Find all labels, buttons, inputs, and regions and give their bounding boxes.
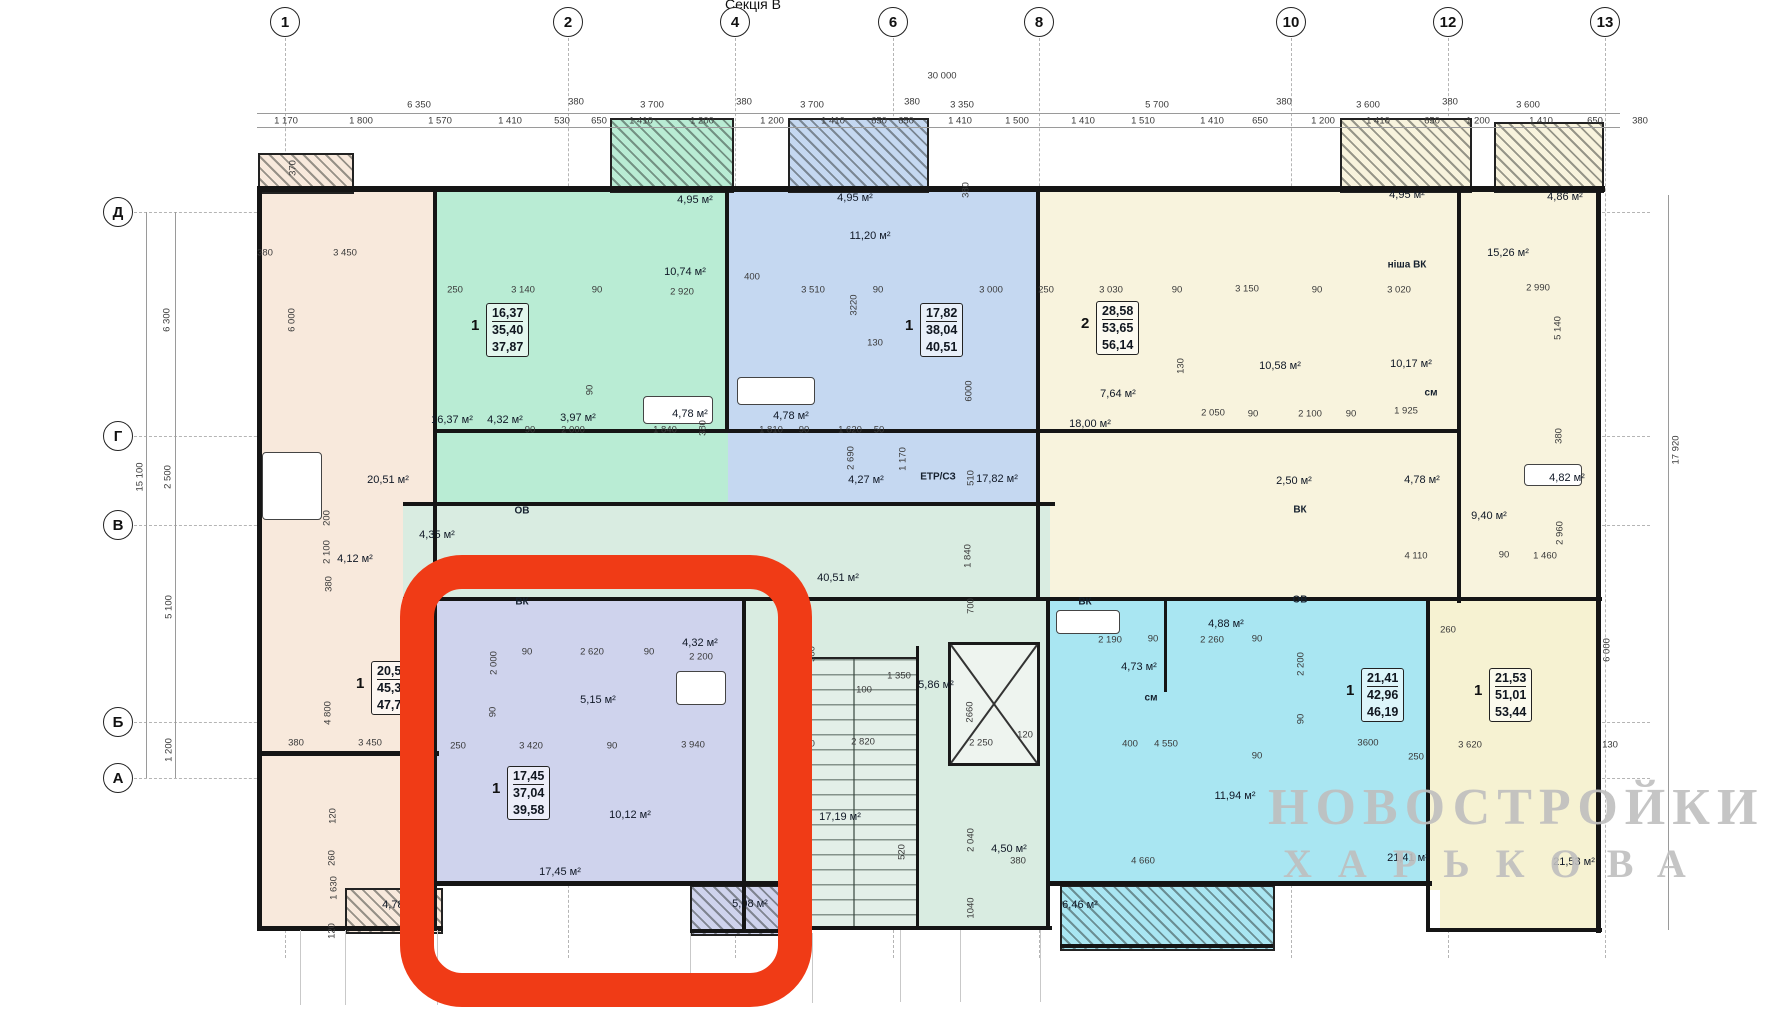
area-label: 11,20 м² xyxy=(850,230,891,242)
plumbing-fixture xyxy=(737,377,815,405)
dimension-label: 90 xyxy=(1346,409,1357,420)
apartment-room-count: 2 xyxy=(1081,315,1089,332)
dimension-label: 380 xyxy=(904,97,920,108)
dimension-label: 3 600 xyxy=(1356,100,1380,111)
area-label: 4,73 м² xyxy=(1121,661,1157,673)
extension-line xyxy=(300,930,301,1005)
area-label: 2,50 м² xyxy=(1276,475,1312,487)
apartment-area-value: 20,5 xyxy=(377,663,401,680)
dimension-label: 1 200 xyxy=(164,738,175,762)
elevator-shaft xyxy=(948,642,1040,766)
plumbing-fixture xyxy=(1056,610,1120,634)
room-fill xyxy=(437,190,728,505)
dimension-label: 3 600 xyxy=(1516,100,1540,111)
area-label: 4,32 м² xyxy=(487,414,523,426)
dimension-label: 3 140 xyxy=(511,285,535,296)
area-label: 4,78 м² xyxy=(1404,474,1440,486)
dimension-label: 370 xyxy=(288,160,299,176)
dimension-label: 5 140 xyxy=(1553,316,1564,340)
highlight-rectangle xyxy=(400,555,812,1007)
dimension-label: 2 040 xyxy=(966,828,977,852)
room-tag-label: ВК xyxy=(1293,505,1306,516)
column-axis-marker: 4 xyxy=(720,7,750,37)
room-tag-label: см xyxy=(1145,693,1158,704)
room-fill xyxy=(1440,885,1600,932)
dimension-label: 90 xyxy=(1172,285,1183,296)
apartment-area-value: 17,82 xyxy=(926,305,957,322)
dimension-label: 1 500 xyxy=(1005,116,1029,127)
column-axis-marker: 13 xyxy=(1590,7,1620,37)
dimension-label: 90 xyxy=(873,285,884,296)
dimension-label: 90 xyxy=(1252,634,1263,645)
dimension-label: 380 xyxy=(1442,97,1458,108)
dimension-label: 2 250 xyxy=(969,738,993,749)
area-label: 11,94 м² xyxy=(1215,790,1256,802)
dimension-label: 4 110 xyxy=(1404,551,1427,562)
area-label: 16,37 м² xyxy=(431,414,473,426)
watermark-line: ХАРЬКОВА xyxy=(1283,840,1712,887)
area-label: 4,95 м² xyxy=(837,192,873,204)
column-axis-marker: 12 xyxy=(1433,7,1463,37)
dimension-label: 400 xyxy=(1122,739,1138,750)
dimension-label: 3 700 xyxy=(640,100,664,111)
dimension-label: 650 xyxy=(1587,116,1603,127)
dimension-label: 130 xyxy=(1602,740,1618,751)
area-label: 3,97 м² xyxy=(560,412,596,424)
dimension-label: 1 410 xyxy=(498,116,522,127)
dimension-label: 3 620 xyxy=(1458,740,1482,751)
dimension-label: 3 450 xyxy=(358,738,382,749)
dimension-label: 380 xyxy=(257,248,273,259)
dimension-label: 1 350 xyxy=(887,671,911,682)
row-axis-marker: Д xyxy=(103,197,133,227)
dimension-label: 2 100 xyxy=(1298,409,1322,420)
dimension-label: 520 xyxy=(897,844,908,860)
apartment-room-count: 1 xyxy=(905,317,913,334)
dimension-label: 5 700 xyxy=(1145,100,1169,111)
dimension-label: 2 920 xyxy=(670,287,694,298)
area-label: 4,27 м² xyxy=(848,474,884,486)
dimension-label: 700 xyxy=(966,598,977,614)
balcony xyxy=(1494,122,1604,193)
dimension-label: 4 660 xyxy=(1131,856,1155,867)
column-axis-marker: 10 xyxy=(1276,7,1306,37)
apartment-area-value: 45,3 xyxy=(377,680,401,696)
dimension-label: 6 300 xyxy=(162,308,173,332)
dimension-label: 6 000 xyxy=(1602,638,1613,662)
wall-segment xyxy=(1457,186,1461,603)
dimension-label: 1 200 xyxy=(1466,116,1490,127)
extension-line xyxy=(960,930,961,1002)
dimension-line xyxy=(257,127,1620,128)
apartment-areas: 16,3735,4037,87 xyxy=(486,303,529,357)
balcony xyxy=(1340,118,1472,193)
dimension-label: 90 xyxy=(585,385,596,396)
dimension-label: 30 000 xyxy=(927,71,956,82)
apartment-info-box: 121,5351,0153,44 xyxy=(1489,668,1532,722)
watermark-line: НОВОСТРОЙКИ xyxy=(1268,778,1764,837)
row-axis-marker: Б xyxy=(103,707,133,737)
apartment-room-count: 1 xyxy=(1346,682,1354,699)
column-axis-marker: 2 xyxy=(553,7,583,37)
apartment-areas: 21,5351,0153,44 xyxy=(1489,668,1532,722)
dimension-label: 1 630 xyxy=(329,876,340,900)
dimension-label: 3 700 xyxy=(800,100,824,111)
apartment-area-value: 28,58 xyxy=(1102,303,1133,320)
dimension-label: 3 150 xyxy=(1235,284,1259,295)
apartment-areas: 21,4142,9646,19 xyxy=(1361,668,1404,722)
dimension-label: 3 510 xyxy=(801,285,825,296)
area-label: 7,64 м² xyxy=(1100,388,1136,400)
dimension-label: 6 000 xyxy=(287,308,298,332)
dimension-label: 1 200 xyxy=(760,116,784,127)
column-axis-marker: 8 xyxy=(1024,7,1054,37)
apartment-area-value: 21,53 xyxy=(1495,670,1526,687)
dimension-label: 650 xyxy=(871,116,887,127)
dimension-label: 90 xyxy=(1148,634,1159,645)
room-fill xyxy=(1040,505,1460,600)
apartment-info-box: 121,4142,9646,19 xyxy=(1361,668,1404,722)
area-label: 4,95 м² xyxy=(677,194,713,206)
dimension-label: 1 570 xyxy=(428,116,452,127)
dimension-label: 2 820 xyxy=(851,737,875,748)
room-fill xyxy=(1460,190,1600,602)
dimension-label: 250 xyxy=(447,285,463,296)
dimension-label: 90 xyxy=(1252,751,1263,762)
dimension-label: 3 000 xyxy=(979,285,1003,296)
dimension-label: 380 xyxy=(1276,97,1292,108)
dimension-label: 2 190 xyxy=(1098,635,1122,646)
dimension-label: 400 xyxy=(744,272,760,283)
wall-segment xyxy=(437,429,1460,433)
wall-segment xyxy=(1046,600,1050,930)
dimension-label: 1 410 xyxy=(948,116,972,127)
dimension-label: 1 925 xyxy=(1394,406,1418,417)
dimension-label: 250 xyxy=(1038,285,1054,296)
room-tag-label: см xyxy=(1425,388,1438,399)
area-label: 10,17 м² xyxy=(1390,358,1432,370)
apartment-areas: 28,5853,6556,14 xyxy=(1096,301,1139,355)
wall-segment xyxy=(1036,186,1040,601)
dimension-label: 380 xyxy=(288,738,304,749)
dimension-label: 510 xyxy=(966,470,977,486)
apartment-room-count: 1 xyxy=(471,317,479,334)
dimension-label: 1 840 xyxy=(963,544,974,568)
dimension-label: 3220 xyxy=(849,294,860,315)
dimension-label: 120 xyxy=(1017,730,1033,741)
apartment-area-value: 40,51 xyxy=(926,339,957,355)
area-label: 4,78 м² xyxy=(773,410,809,422)
dimension-line xyxy=(257,113,1620,114)
dimension-label: 3 450 xyxy=(333,248,357,259)
room-tag-label: ніша ВК xyxy=(1388,260,1427,271)
apartment-info-box: 116,3735,4037,87 xyxy=(486,303,529,357)
apartment-area-value: 38,04 xyxy=(926,322,957,338)
dimension-label: 380 xyxy=(1632,116,1648,127)
dimension-label: 1 510 xyxy=(1131,116,1155,127)
apartment-area-value: 56,14 xyxy=(1102,337,1133,353)
dimension-label: 3 030 xyxy=(1099,285,1123,296)
apartment-area-value: 16,37 xyxy=(492,305,523,322)
dimension-label: 130 xyxy=(867,338,883,349)
dimension-label: 380 xyxy=(961,182,972,198)
dimension-label: 90 xyxy=(592,285,603,296)
room-tag-label: ВК xyxy=(1078,597,1091,608)
dimension-label: 650 xyxy=(591,116,607,127)
area-label: 4,50 м² xyxy=(991,843,1027,855)
area-label: 15,26 м² xyxy=(1487,247,1529,259)
area-label: 4,86 м² xyxy=(1547,191,1583,203)
plumbing-fixture xyxy=(262,452,322,520)
dimension-label: 530 xyxy=(554,116,570,127)
wall-segment xyxy=(1430,928,1602,932)
area-label: 4,82 м² xyxy=(1549,472,1585,484)
apartment-area-value: 47,7 xyxy=(377,697,401,713)
area-label: 4,95 м² xyxy=(1389,189,1425,201)
apartment-area-value: 46,19 xyxy=(1367,704,1398,720)
dimension-label: 1 170 xyxy=(898,447,909,471)
balcony xyxy=(1060,885,1275,951)
dimension-label: 90 xyxy=(799,425,810,436)
area-label: 6,46 м² xyxy=(1062,899,1098,911)
row-axis-marker: В xyxy=(103,510,133,540)
dimension-label: 1 620 xyxy=(838,425,862,436)
balcony xyxy=(610,118,734,193)
dimension-label: 380 xyxy=(736,97,752,108)
area-label: 5,86 м² xyxy=(918,679,954,691)
row-axis-marker: Г xyxy=(103,421,133,451)
wall-segment xyxy=(1060,944,1273,948)
dimension-label: 90 xyxy=(525,425,536,436)
dimension-label: 2 100 xyxy=(322,540,333,564)
dimension-label: 50 xyxy=(874,425,885,436)
dimension-label: 380 xyxy=(324,576,335,592)
staircase-divider xyxy=(853,659,855,927)
area-label: 4,78 м² xyxy=(672,408,708,420)
dimension-label: 2 200 xyxy=(1296,652,1307,676)
dimension-label: 2 050 xyxy=(1201,408,1225,419)
dimension-label: 1 410 xyxy=(1200,116,1224,127)
dimension-label: 4 550 xyxy=(1154,739,1178,750)
dimension-label: 130 xyxy=(1176,358,1187,374)
apartment-area-value: 51,01 xyxy=(1495,687,1526,703)
floor-plan-canvas: Секція В НОВОСТРОЙКИ ХАРЬКОВА 30 0006 35… xyxy=(0,0,1788,1010)
dimension-label: 1 200 xyxy=(1311,116,1335,127)
dimension-label: 6000 xyxy=(964,380,975,401)
wall-segment xyxy=(1164,600,1167,692)
area-label: 40,51 м² xyxy=(817,572,859,584)
dimension-label: 1 460 xyxy=(1533,551,1557,562)
dimension-label: 5 100 xyxy=(164,595,175,619)
dimension-label: 100 xyxy=(856,685,872,696)
dimension-label: 2660 xyxy=(965,701,976,722)
dimension-label: 15 100 xyxy=(135,462,146,491)
dimension-label: 1 840 xyxy=(653,425,677,436)
room-tag-label: ЕТР/СЗ xyxy=(920,472,956,483)
dimension-label: 2 000 xyxy=(561,425,585,436)
dimension-label: 3600 xyxy=(1357,738,1378,749)
wall-segment xyxy=(403,502,1055,506)
dimension-label: 2 960 xyxy=(1555,521,1566,545)
dimension-label: 3 350 xyxy=(950,100,974,111)
area-label: 9,40 м² xyxy=(1471,510,1507,522)
area-label: 17,19 м² xyxy=(819,811,861,823)
wall-segment xyxy=(257,186,262,931)
balcony xyxy=(788,118,929,193)
area-label: 4,12 м² xyxy=(337,553,373,565)
dimension-label: 650 xyxy=(898,116,914,127)
apartment-area-value: 53,44 xyxy=(1495,704,1526,720)
dimension-label: 380 xyxy=(1554,428,1565,444)
area-label: 10,58 м² xyxy=(1259,360,1301,372)
column-axis-marker: 1 xyxy=(270,7,300,37)
dimension-label: 1040 xyxy=(966,897,977,918)
dimension-label: 1 200 xyxy=(690,116,714,127)
dimension-label: 2 990 xyxy=(1526,283,1550,294)
dimension-label: 1 410 xyxy=(629,116,653,127)
extension-line xyxy=(900,930,901,1002)
wall-segment xyxy=(800,926,1052,930)
apartment-info-box: 228,5853,6556,14 xyxy=(1096,301,1139,355)
extension-line xyxy=(345,930,346,1005)
apartment-areas: 17,8238,0440,51 xyxy=(920,303,963,357)
row-axis-marker: А xyxy=(103,763,133,793)
dimension-label: 1 800 xyxy=(349,116,373,127)
dimension-label: 3 020 xyxy=(1387,285,1411,296)
extension-line xyxy=(1040,930,1041,1002)
dimension-line xyxy=(175,212,176,778)
apartment-room-count: 1 xyxy=(356,675,364,692)
dimension-line xyxy=(146,212,147,778)
dimension-label: 1 810 xyxy=(759,425,783,436)
dimension-label: 380 xyxy=(568,97,584,108)
dimension-label: 380 xyxy=(698,420,709,436)
dimension-label: 17 920 xyxy=(1671,435,1682,464)
dimension-label: 2 260 xyxy=(1200,635,1224,646)
area-label: 4,88 м² xyxy=(1208,618,1244,630)
apartment-area-value: 53,65 xyxy=(1102,320,1133,336)
area-label: 10,74 м² xyxy=(664,266,706,278)
dimension-label: 200 xyxy=(322,510,333,526)
dimension-label: 1 170 xyxy=(274,116,298,127)
dimension-label: 260 xyxy=(1440,625,1456,636)
dimension-label: 250 xyxy=(1408,752,1424,763)
apartment-area-value: 42,96 xyxy=(1367,687,1398,703)
dimension-label: 90 xyxy=(1499,550,1510,561)
area-label: 4,35 м² xyxy=(419,529,455,541)
dimension-label: 4 800 xyxy=(323,701,334,725)
apartment-info-box: 117,8238,0440,51 xyxy=(920,303,963,357)
dimension-label: 1 410 xyxy=(1366,116,1390,127)
dimension-label: 90 xyxy=(1248,409,1259,420)
dimension-label: 6 350 xyxy=(407,100,431,111)
column-axis-marker: 6 xyxy=(878,7,908,37)
extension-line xyxy=(812,933,813,1003)
apartment-area-value: 21,41 xyxy=(1367,670,1398,687)
dimension-label: 260 xyxy=(327,850,338,866)
dimension-label: 90 xyxy=(1312,285,1323,296)
room-tag-label: ОВ xyxy=(515,506,530,517)
dimension-label: 2 500 xyxy=(163,465,174,489)
dimension-label: 1 410 xyxy=(1071,116,1095,127)
apartment-area-value: 35,40 xyxy=(492,322,523,338)
dimension-label: 1 410 xyxy=(1529,116,1553,127)
dimension-label: 90 xyxy=(1296,714,1307,725)
dimension-label: 380 xyxy=(1010,856,1026,867)
area-label: 17,82 м² xyxy=(976,473,1018,485)
dimension-label: 120 xyxy=(327,923,338,939)
dimension-label: 1 410 xyxy=(821,116,845,127)
apartment-area-value: 37,87 xyxy=(492,339,523,355)
area-label: 18,00 м² xyxy=(1069,418,1111,430)
apartment-room-count: 1 xyxy=(1474,682,1482,699)
dimension-label: 650 xyxy=(1252,116,1268,127)
dimension-label: 2 690 xyxy=(846,446,857,470)
room-tag-label: ОВ xyxy=(1293,595,1308,606)
wall-segment xyxy=(725,186,729,433)
dimension-label: 120 xyxy=(328,808,339,824)
area-label: 20,51 м² xyxy=(367,474,409,486)
dimension-label: 650 xyxy=(1424,116,1440,127)
